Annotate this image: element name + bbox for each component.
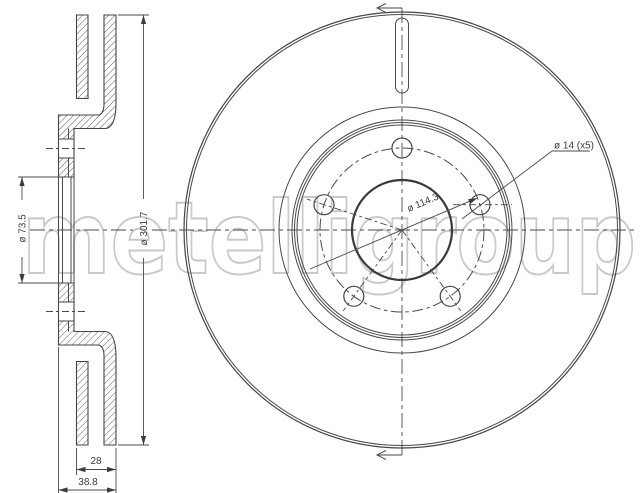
brake-disc-technical-drawing: metelligroup ø 7 — [0, 0, 640, 493]
dim-od-label: ø 301.7 — [139, 211, 150, 245]
drawing-canvas: metelligroup ø 7 — [0, 0, 640, 493]
dim-thickness-label: 28 — [90, 456, 102, 467]
section-cut-arrow-top — [377, 4, 402, 13]
bolt-holes-label: ø 14 (x5) — [554, 141, 594, 152]
section-upper-plate — [77, 15, 89, 99]
section-lower-plate — [77, 362, 89, 446]
section-cut-arrow-bottom — [377, 451, 402, 460]
dim-bore-label: ø 73.5 — [18, 214, 29, 243]
dim-width-label: 38.8 — [78, 477, 98, 488]
watermark-text: metelligroup — [22, 180, 636, 297]
